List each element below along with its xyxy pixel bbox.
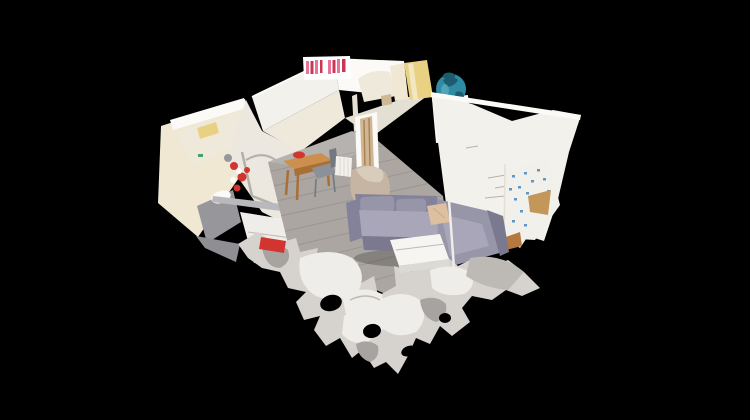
door-opening	[360, 116, 374, 171]
bottle	[333, 60, 336, 73]
globe-cap	[443, 73, 455, 80]
desk-leg	[297, 175, 298, 200]
red-item	[244, 167, 250, 173]
bottle	[306, 61, 309, 74]
bottle	[320, 60, 323, 73]
fragment-light	[430, 266, 473, 295]
door-slit	[381, 94, 392, 106]
floral-dot	[531, 180, 534, 183]
chair-leg	[315, 179, 316, 197]
rust-streak	[364, 120, 365, 168]
green-marker	[198, 154, 203, 157]
scan-hole	[299, 322, 313, 332]
white-item	[236, 168, 242, 174]
red-item	[230, 162, 238, 170]
scan-hole	[439, 313, 451, 323]
gray-item	[224, 154, 232, 162]
bottle	[342, 59, 346, 72]
bottle	[315, 60, 318, 74]
floral-dot	[526, 192, 529, 195]
red-item	[234, 185, 241, 192]
bottle	[328, 60, 331, 74]
floral-dot	[524, 224, 527, 227]
throw-pillow	[427, 203, 450, 225]
red-bowl	[293, 152, 305, 159]
floral-dot	[512, 175, 515, 178]
floral-dot	[518, 186, 521, 189]
floral-dot	[514, 198, 517, 201]
white-item	[230, 177, 236, 183]
floral-dot	[509, 188, 512, 191]
bottle	[337, 59, 340, 73]
floral-dot	[537, 169, 540, 172]
floral-dot	[520, 210, 523, 213]
rust-streak	[369, 118, 370, 166]
floral-dot	[524, 172, 527, 175]
bottle	[311, 61, 314, 74]
floral-dot	[543, 178, 546, 181]
floral-dot	[512, 220, 515, 223]
dollhouse-3d-view[interactable]	[0, 0, 750, 420]
